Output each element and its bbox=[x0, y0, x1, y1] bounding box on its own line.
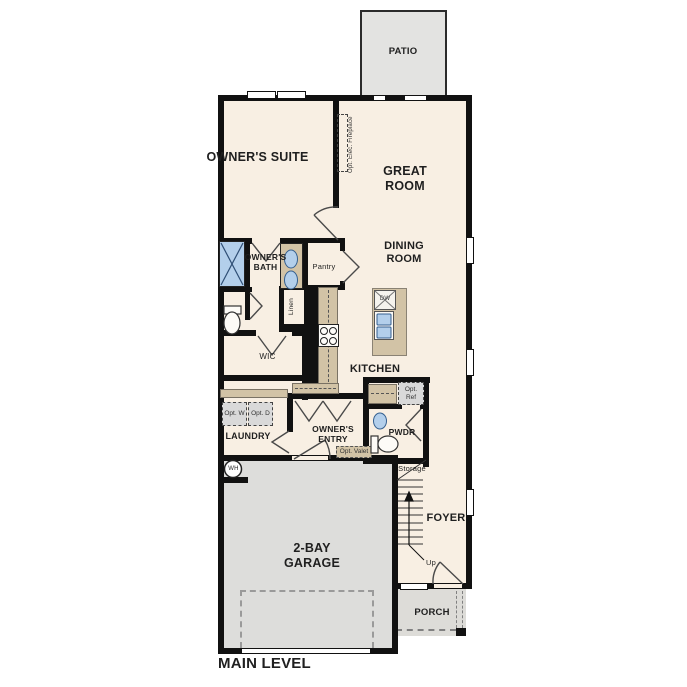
foyer-label: FOYER bbox=[424, 512, 468, 524]
wall-left-garage bbox=[218, 455, 224, 654]
storage-label: Storage bbox=[394, 464, 430, 473]
wall-wic-bottom bbox=[218, 375, 306, 381]
window-right-1 bbox=[466, 237, 474, 264]
garage-entry-door-gap bbox=[292, 456, 328, 460]
up-label: Up bbox=[423, 558, 439, 567]
wall-wh-stub bbox=[218, 477, 248, 483]
opt-dryer-box: Opt. D bbox=[248, 402, 273, 426]
wall-pantry-top bbox=[303, 238, 345, 243]
main-level-title: MAIN LEVEL bbox=[218, 655, 338, 672]
linen-label: Linen bbox=[288, 292, 300, 322]
water-heater-label: WH bbox=[225, 466, 242, 472]
porch-dashed-edge-right bbox=[456, 591, 457, 628]
opt-valet-box: Opt. Valet bbox=[336, 446, 372, 458]
laundry-shelf bbox=[220, 389, 288, 398]
island-sink-box bbox=[374, 311, 394, 340]
stove bbox=[318, 324, 339, 347]
porch-corner-post bbox=[456, 628, 466, 636]
wall-garage-right bbox=[392, 455, 398, 654]
kitchen-counter-horizontal-dash bbox=[295, 388, 336, 389]
dishwasher-label: DW bbox=[375, 296, 395, 302]
wall-garage-bottom-left bbox=[218, 648, 242, 654]
kitchen-label: KITCHEN bbox=[344, 363, 406, 375]
porch-dashed-edge-right2 bbox=[462, 591, 463, 628]
pwdr-label: PWDR bbox=[386, 427, 418, 437]
opt-dryer-label: Opt. D bbox=[251, 410, 270, 418]
opt-fireplace-label: Opt. Elec. Fireplace bbox=[348, 110, 359, 180]
opt-washer-box: Opt. W bbox=[222, 402, 247, 426]
opt-fireplace-box bbox=[337, 114, 348, 172]
opt-valet-label: Opt. Valet bbox=[340, 448, 368, 456]
garage-label: 2-BAY GARAGE bbox=[266, 541, 358, 571]
patio-door-gap-2 bbox=[405, 96, 426, 100]
porch-dashed-edge-bottom bbox=[396, 629, 456, 631]
owners-bath-label: OWNER'S BATH bbox=[238, 252, 293, 272]
ref-nook-counter bbox=[368, 384, 397, 404]
garage-door-clearance-dashed bbox=[240, 590, 374, 648]
wall-wc-right bbox=[245, 290, 250, 320]
opt-ref-label: Opt. Ref bbox=[399, 386, 423, 402]
window-suite-2 bbox=[277, 91, 306, 99]
opt-washer-label: Opt. W bbox=[224, 410, 244, 418]
laundry-label: LAUNDRY bbox=[220, 431, 276, 441]
window-suite-1 bbox=[247, 91, 276, 99]
owners-suite-label: OWNER'S SUITE bbox=[200, 150, 315, 165]
window-porch bbox=[400, 583, 428, 590]
bath-door-gap bbox=[252, 239, 280, 243]
porch-label: PORCH bbox=[408, 607, 456, 618]
floor-plan: Opt. W Opt. D Opt. Ref Opt. Valet bbox=[0, 0, 687, 687]
owners-entry-label: OWNER'S ENTRY bbox=[299, 424, 367, 444]
patio-door-gap-1 bbox=[374, 96, 385, 100]
front-door-gap bbox=[434, 584, 462, 588]
dining-room-label: DINING ROOM bbox=[369, 240, 439, 266]
wall-kitchen-back bbox=[305, 285, 318, 388]
window-right-2 bbox=[466, 349, 474, 376]
wall-laundry-entry bbox=[287, 398, 293, 432]
garage-door bbox=[242, 648, 370, 654]
great-room-label: GREAT ROOM bbox=[366, 164, 444, 194]
patio-label: PATIO bbox=[375, 46, 431, 57]
wall-pwdr-top bbox=[366, 404, 402, 409]
opt-ref-box: Opt. Ref bbox=[398, 382, 424, 405]
wic-label: WIC bbox=[245, 352, 290, 361]
wall-wic-top-left bbox=[218, 330, 256, 336]
pantry-label: Pantry bbox=[305, 262, 343, 271]
ref-nook-counter-dash bbox=[371, 393, 394, 394]
